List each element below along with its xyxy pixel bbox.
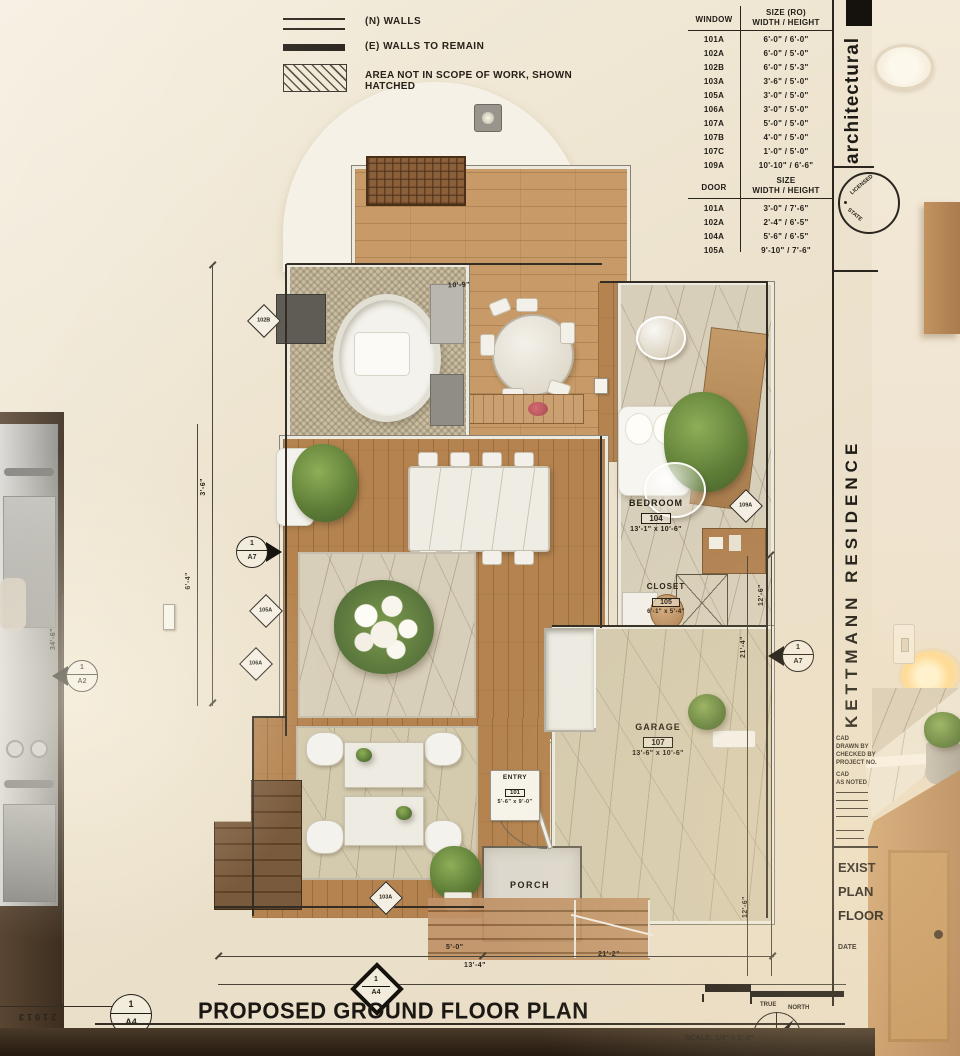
- dimension-text: 34'-6": [50, 628, 57, 650]
- recessed-light-icon: [874, 44, 934, 90]
- marker-number: 1: [237, 537, 267, 551]
- cabinet-panel: [888, 850, 950, 1042]
- window-row-size: 6'-0" / 5'-0": [740, 49, 832, 58]
- legend-label-new-walls: (N) WALLS: [365, 16, 421, 27]
- window-row-id: 106A: [688, 105, 740, 114]
- logo-cap: [846, 0, 872, 26]
- cabinet-knob-icon: [934, 930, 943, 939]
- marker-sheet: A2: [67, 675, 97, 688]
- window-tag-icon: 106A: [239, 647, 273, 681]
- legend-label-hatched: AREA NOT IN SCOPE OF WORK, SHOWN HATCHED: [365, 70, 625, 92]
- ceiling-light-icon: [474, 104, 502, 132]
- tag-label: 102B: [257, 318, 270, 324]
- table-chair: [418, 452, 438, 467]
- lounge-chair: [424, 732, 462, 766]
- firm-name: architectural: [842, 24, 864, 164]
- floor-plan-sheet: (N) WALLS (E) WALLS TO REMAIN AREA NOT I…: [0, 0, 960, 1056]
- tag-label: 105A: [259, 608, 272, 614]
- door-row-size: 5'-6" / 6'-5": [740, 232, 832, 241]
- new-walls-symbol-icon: [283, 18, 345, 30]
- info-rule: [836, 792, 868, 793]
- corner-rule: [0, 1006, 112, 1007]
- window-row-size: 3'-0" / 5'-0": [740, 91, 832, 100]
- wall: [252, 718, 254, 916]
- room-size: 6'-1" x 5'-4": [618, 609, 714, 615]
- wall: [252, 716, 287, 718]
- info-rule: [836, 830, 864, 831]
- upper-cabinet: [924, 202, 960, 334]
- window-row-id: 102A: [688, 49, 740, 58]
- long-dining-table: [408, 466, 550, 552]
- floor-hall-strip: [598, 282, 620, 462]
- window-row-id: 109A: [688, 161, 740, 170]
- oven-knob-icon: [6, 740, 24, 758]
- window-row-id: 107C: [688, 147, 740, 156]
- door-row-id: 102A: [688, 218, 740, 227]
- room-label-garage: GARAGE 107 13'-6" x 10'-6": [598, 722, 718, 757]
- north-diamond-ref: 1 A4: [362, 973, 390, 1001]
- pillow: [625, 413, 653, 445]
- oven-handle-icon: [4, 780, 54, 788]
- schedule-header-rule: [688, 30, 832, 31]
- shower-glass: [594, 628, 596, 728]
- succulent-plant: [924, 712, 960, 748]
- tag-label: 103A: [379, 895, 392, 901]
- glass-pendant-icon: [636, 316, 686, 360]
- window-size-header-1: SIZE (RO): [740, 8, 832, 17]
- dim-line: [771, 556, 772, 976]
- towel: [712, 730, 756, 748]
- window-row-id: 107A: [688, 119, 740, 128]
- title-underline: [95, 1023, 845, 1025]
- info-line: CAD: [836, 736, 849, 743]
- dimension-text: 6'-4": [185, 572, 192, 590]
- dim-line: [197, 424, 198, 706]
- info-rule: [836, 838, 864, 839]
- sheet-title: EXIST PLAN FLOOR: [838, 856, 882, 928]
- tag-label: 109A: [739, 503, 752, 509]
- oven-handle-icon: [4, 468, 54, 476]
- legend: (N) WALLS (E) WALLS TO REMAIN AREA NOT I…: [283, 10, 613, 90]
- wall-tag: [163, 604, 175, 630]
- bath-cabinet: [430, 374, 464, 426]
- canister: [0, 578, 26, 630]
- table-chair: [514, 452, 534, 467]
- marker-number: 1: [67, 661, 97, 675]
- window-row-id: 105A: [688, 91, 740, 100]
- dim-line: [218, 956, 774, 957]
- oven-knob-icon: [30, 740, 48, 758]
- existing-walls-symbol-icon: [283, 44, 345, 51]
- wall: [285, 264, 287, 736]
- room-name: BEDROOM: [596, 498, 716, 508]
- scale-note: SCALE: 1/4" = 1'-0": [685, 1033, 754, 1042]
- coffee-table: [344, 742, 424, 788]
- shelf-item: [709, 537, 723, 549]
- step-railing: [574, 900, 576, 958]
- wall: [287, 263, 602, 265]
- north-ref-sheet: A4: [362, 987, 390, 999]
- window-row-id: 107B: [688, 133, 740, 142]
- table-chair: [482, 452, 502, 467]
- dim-line: [212, 266, 213, 706]
- dim-line: [62, 594, 63, 1004]
- room-label-closet: CLOSET 105 6'-1" x 5'-4": [618, 582, 714, 615]
- stamp-text-top: LICENSED: [849, 174, 874, 196]
- drawing-title: PROPOSED GROUND FLOOR PLAN: [198, 997, 589, 1024]
- window-row-size: 6'-0" / 5'-3": [740, 63, 832, 72]
- date-label: DATE: [838, 944, 857, 951]
- scale-bar-tick: [702, 994, 704, 1002]
- door-row-size: 3'-0" / 7'-6": [740, 204, 832, 213]
- wall: [600, 281, 768, 283]
- door-row-size: 9'-10" / 7'-6": [740, 246, 832, 255]
- room-number: 101: [505, 789, 525, 797]
- wall-tag: [594, 378, 608, 394]
- sheet-title-line: FLOOR: [838, 904, 882, 928]
- dimension-text: 13'-4": [464, 962, 486, 969]
- dimension-text: 21'-2": [598, 951, 620, 958]
- room-label-bedroom: BEDROOM 104 13'-1" x 10'-6": [596, 498, 716, 533]
- dimension-text: 3'-6": [200, 478, 207, 496]
- north-ref-number: 1: [362, 973, 390, 987]
- sheet-title-line: EXIST: [838, 856, 882, 880]
- table-plant: [356, 748, 372, 762]
- room-number: 107: [643, 737, 672, 748]
- lounge-chair: [306, 820, 344, 854]
- light-lens: [482, 112, 494, 124]
- room-size: 13'-1" x 10'-6": [596, 526, 716, 533]
- room-label-entry: ENTRY 101 5'-6" x 9'-0": [490, 770, 540, 821]
- window-size-header-2: WIDTH / HEIGHT: [740, 18, 832, 27]
- window-row-size: 5'-0" / 5'-0": [740, 119, 832, 128]
- door-row-id: 101A: [688, 204, 740, 213]
- wall: [552, 625, 768, 627]
- oven-stack: [0, 424, 58, 906]
- bath-tray: [354, 332, 410, 376]
- info-line: PROJECT NO.: [836, 760, 877, 767]
- table-chair: [514, 550, 534, 565]
- sideboard: [462, 394, 584, 424]
- info-rule: [836, 816, 868, 817]
- room-size: 13'-6" x 10'-6": [598, 750, 718, 757]
- info-rule: [836, 800, 868, 801]
- window-row-size: 6'-0" / 6'-0": [740, 35, 832, 44]
- window-tag-icon: 105A: [249, 594, 283, 628]
- marker-sheet: A7: [237, 551, 267, 564]
- stamp-dot: [844, 201, 847, 204]
- window-row-size: 3'-6" / 5'-0": [740, 77, 832, 86]
- dining-chair: [560, 322, 575, 344]
- info-line: CAD: [836, 772, 849, 779]
- door-size-header-1: SIZE: [740, 176, 832, 185]
- room-number: 105: [652, 598, 680, 607]
- info-line: DRAWN BY: [836, 744, 869, 751]
- window-door-schedule: WINDOW SIZE (RO) WIDTH / HEIGHT 101A6'-0…: [688, 6, 832, 252]
- room-number: 104: [641, 513, 670, 524]
- door-row-id: 104A: [688, 232, 740, 241]
- marker-sheet: A7: [783, 655, 813, 668]
- door-size-header-2: WIDTH / HEIGHT: [740, 186, 832, 195]
- flower-bouquet: [334, 580, 434, 674]
- wall: [766, 282, 768, 918]
- window-row-size: 10'-10" / 6'-6": [740, 161, 832, 170]
- scale-bar-tick: [750, 997, 752, 1004]
- door-row-size: 2'-4" / 6'-5": [740, 218, 832, 227]
- section-marker-icon: 1 A7: [236, 536, 268, 568]
- stamp-text-bottom: STATE: [846, 207, 863, 223]
- hatched-area-symbol-icon: [283, 64, 347, 92]
- info-line: CHECKED BY: [836, 752, 876, 759]
- step-railing: [648, 900, 650, 958]
- marker-number: 1: [783, 641, 813, 655]
- sheet-title-line: PLAN: [838, 880, 882, 904]
- scale-bar-seg: [705, 984, 751, 992]
- dimension-text: 12'-6": [742, 896, 749, 918]
- dimension-text: 21'-4": [740, 636, 747, 658]
- window-row-size: 3'-0" / 5'-0": [740, 105, 832, 114]
- light-switch: [893, 624, 915, 664]
- shelf-niche: [702, 528, 766, 574]
- title-block-rule: [832, 270, 878, 272]
- architect-stamp: LICENSED STATE: [838, 172, 900, 234]
- dining-chair: [480, 334, 495, 356]
- compass-label: TRUE: [760, 1002, 776, 1008]
- room-name: CLOSET: [618, 582, 714, 591]
- room-label-porch: PORCH: [500, 880, 560, 890]
- room-size: 5'-6" x 9'-0": [491, 799, 539, 805]
- wall: [214, 906, 484, 908]
- compass-label: NORTH: [788, 1005, 809, 1011]
- dining-chair: [516, 298, 538, 312]
- graphic-scale-bar-icon: [700, 982, 850, 1002]
- info-line: AS NOTED: [836, 780, 867, 787]
- bench-lattice: [366, 156, 466, 206]
- dim-tick-icon: [769, 952, 776, 959]
- legend-label-existing-walls: (E) WALLS TO REMAIN: [365, 41, 484, 52]
- section-marker-icon: 1 A2: [66, 660, 98, 692]
- schedule-header-rule: [688, 198, 832, 199]
- table-chair: [482, 550, 502, 565]
- kitchen-counter-corner: [276, 294, 326, 344]
- shelf-item: [729, 535, 741, 551]
- window-row-id: 102B: [688, 63, 740, 72]
- section-arrow-icon: [266, 542, 282, 562]
- room-name: ENTRY: [491, 774, 539, 781]
- titleblock-info: CAD DRAWN BY CHECKED BY PROJECT NO. CAD …: [836, 736, 878, 856]
- table-plant: [396, 806, 412, 820]
- tag-label: 106A: [249, 661, 262, 667]
- lounge-fern: [292, 444, 358, 522]
- corner-scale-text: 21013: [16, 1012, 56, 1022]
- info-rule: [836, 808, 868, 809]
- stairs: [214, 780, 302, 910]
- switch-toggle: [901, 638, 909, 652]
- project-name: KETTMANN RESIDENCE: [842, 336, 862, 728]
- vase-icon: [528, 402, 548, 416]
- drawing-ref-number: 1: [111, 995, 151, 1014]
- firm-logo-box: architectural: [834, 0, 874, 168]
- oven-window: [3, 804, 56, 902]
- shower-pan: [544, 628, 596, 732]
- window-row-size: 1'-0" / 5'-0": [740, 147, 832, 156]
- window-row-id: 103A: [688, 77, 740, 86]
- title-block-rule: [832, 846, 878, 848]
- dimension-text: 10'-9": [448, 282, 470, 290]
- dimension-text: 12'-6": [758, 584, 765, 606]
- window-row-id: 101A: [688, 35, 740, 44]
- window-row-size: 4'-0" / 5'-0": [740, 133, 832, 142]
- door-row-id: 105A: [688, 246, 740, 255]
- door-col-header: DOOR: [688, 183, 740, 192]
- dimension-text: 5'-0": [446, 944, 464, 951]
- window-col-header: WINDOW: [688, 15, 740, 24]
- coffee-table: [344, 796, 424, 846]
- scale-bar-seg: [750, 991, 844, 997]
- table-chair: [450, 452, 470, 467]
- room-name: PORCH: [500, 880, 560, 890]
- section-marker-icon: 1 A7: [782, 640, 814, 672]
- lounge-chair: [306, 732, 344, 766]
- bath-counter: [430, 284, 464, 344]
- room-name: GARAGE: [598, 722, 718, 732]
